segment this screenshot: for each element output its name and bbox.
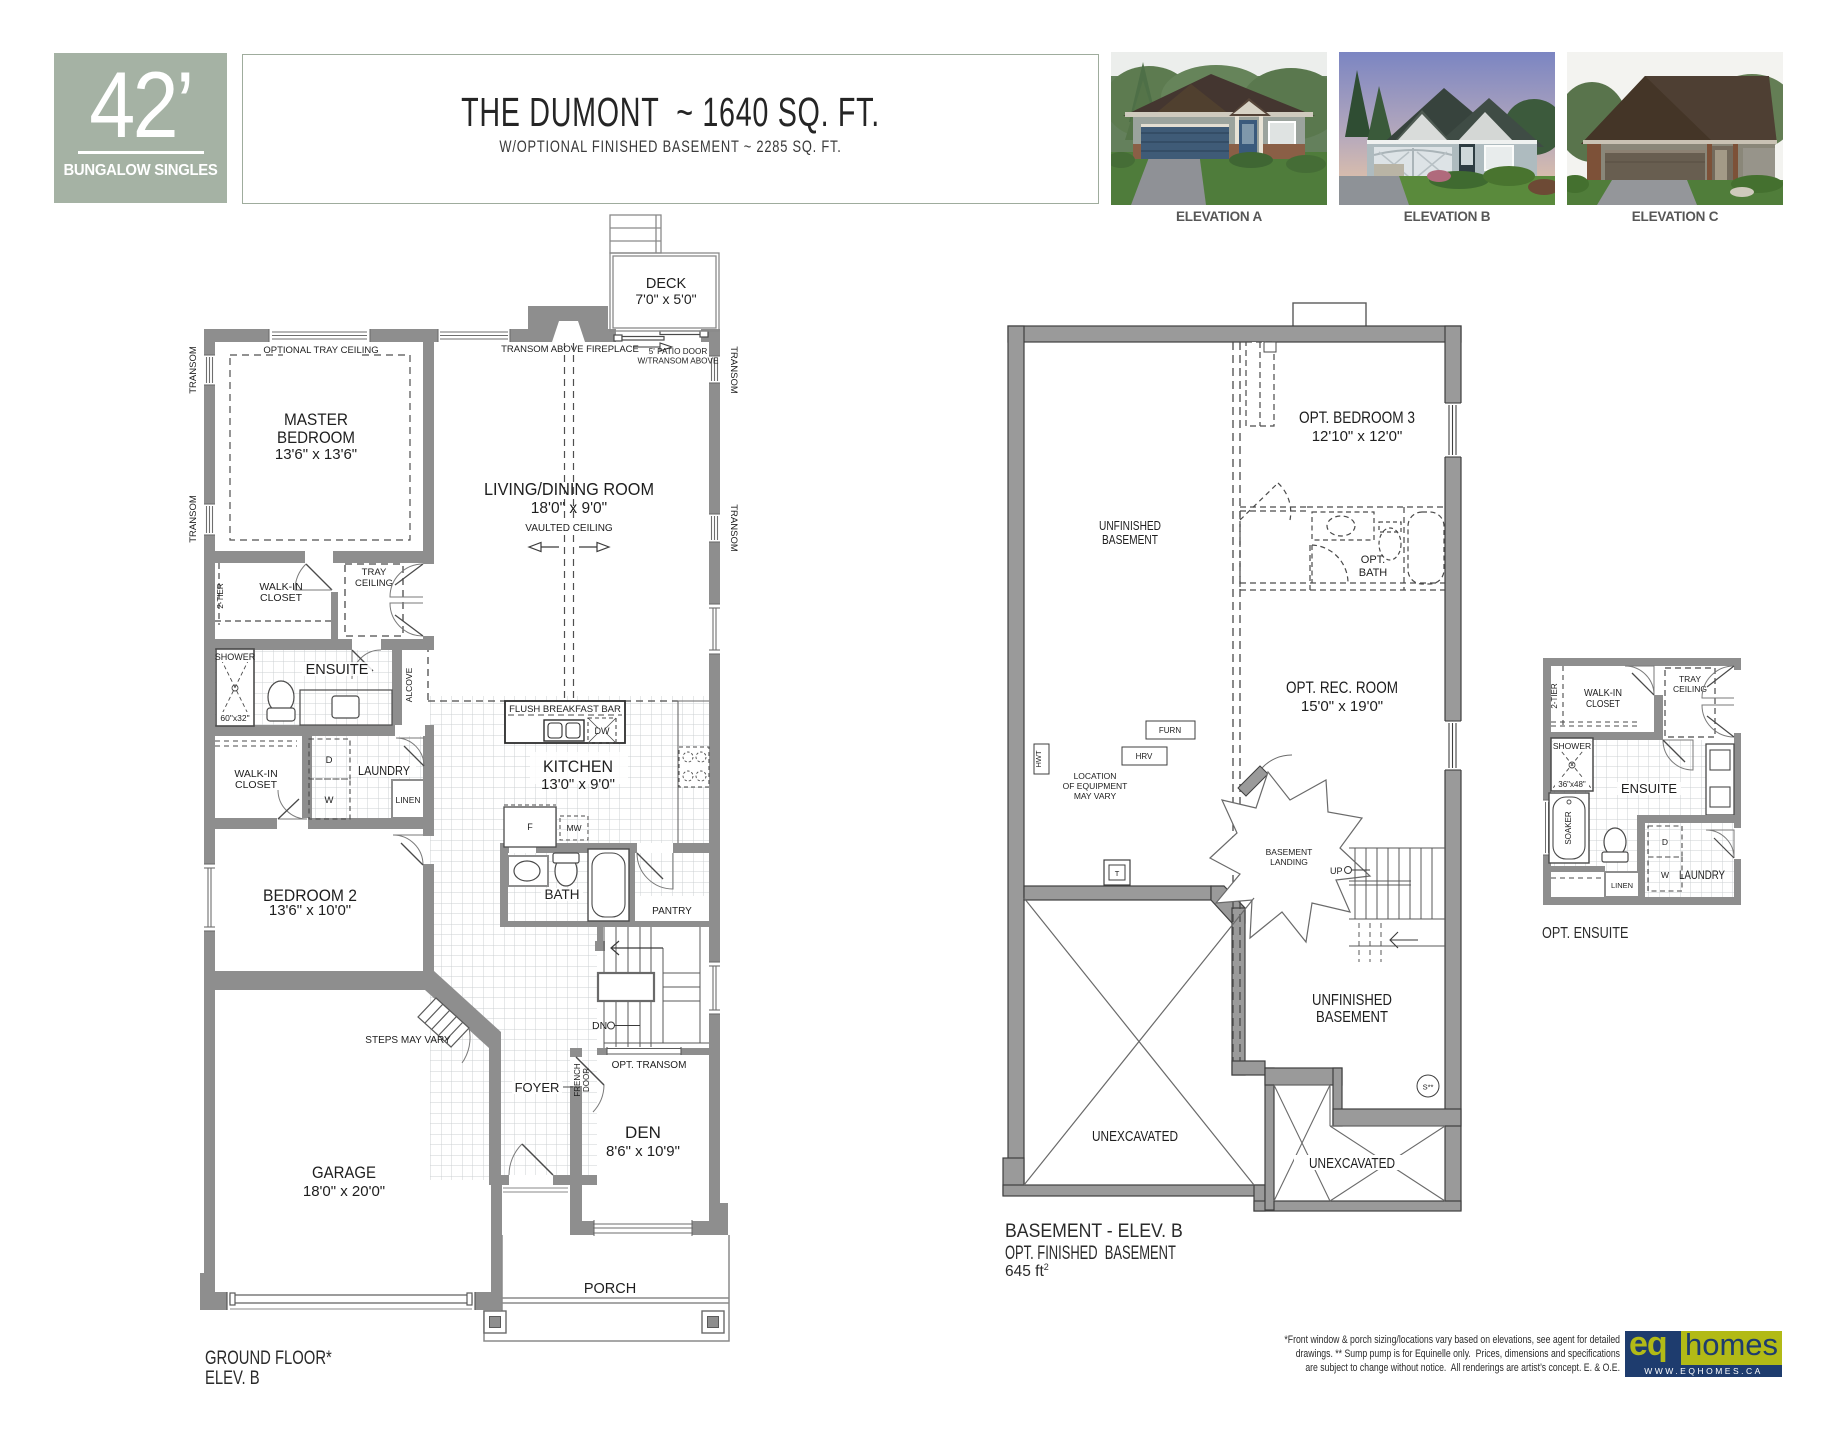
svg-text:LOCATION: LOCATION bbox=[1074, 771, 1117, 781]
svg-text:FURN: FURN bbox=[1159, 726, 1181, 735]
svg-text:13'6" x 10'0": 13'6" x 10'0" bbox=[269, 902, 351, 919]
svg-text:TRAY: TRAY bbox=[362, 567, 387, 578]
svg-text:18'0" x 9'0": 18'0" x 9'0" bbox=[531, 500, 607, 517]
svg-text:TRANSOM: TRANSOM bbox=[728, 346, 739, 394]
svg-text:13'6" x 13'6": 13'6" x 13'6" bbox=[275, 446, 357, 463]
svg-text:OPT.: OPT. bbox=[1361, 554, 1385, 566]
svg-text:LINEN: LINEN bbox=[1611, 881, 1633, 890]
svg-text:2-TIER: 2-TIER bbox=[216, 583, 225, 609]
svg-text:ENSUITE: ENSUITE bbox=[1621, 781, 1677, 796]
svg-text:CEILING: CEILING bbox=[1673, 684, 1707, 694]
svg-text:DECK: DECK bbox=[646, 276, 687, 292]
svg-text:FLUSH BREAKFAST BAR: FLUSH BREAKFAST BAR bbox=[509, 704, 621, 715]
svg-text:UP: UP bbox=[1330, 866, 1343, 876]
svg-text:13'0" x 9'0": 13'0" x 9'0" bbox=[541, 776, 615, 793]
svg-text:BATH: BATH bbox=[1359, 567, 1388, 579]
svg-text:D: D bbox=[326, 755, 333, 766]
svg-text:OPT. REC. ROOM: OPT. REC. ROOM bbox=[1286, 678, 1398, 697]
svg-text:SHOWER: SHOWER bbox=[1553, 741, 1591, 751]
svg-text:PANTRY: PANTRY bbox=[652, 906, 692, 917]
svg-text:60"x32": 60"x32" bbox=[220, 713, 249, 723]
svg-text:FRENCH: FRENCH bbox=[573, 1063, 582, 1097]
svg-text:BASEMENT: BASEMENT bbox=[1266, 847, 1313, 857]
svg-text:D: D bbox=[1662, 837, 1668, 847]
svg-text:OPT. TRANSOM: OPT. TRANSOM bbox=[612, 1060, 687, 1071]
svg-text:OPTIONAL TRAY CEILING: OPTIONAL TRAY CEILING bbox=[263, 345, 378, 356]
svg-text:HWT: HWT bbox=[1034, 750, 1043, 767]
svg-text:BEDROOM: BEDROOM bbox=[277, 428, 355, 447]
svg-text:KITCHEN: KITCHEN bbox=[543, 757, 613, 776]
svg-text:CLOSET: CLOSET bbox=[235, 779, 278, 791]
svg-text:LINEN: LINEN bbox=[395, 795, 420, 805]
svg-text:TRANSOM: TRANSOM bbox=[188, 495, 199, 543]
svg-text:S**: S** bbox=[1423, 1083, 1434, 1092]
svg-text:SOAKER: SOAKER bbox=[1564, 811, 1573, 845]
svg-text:DN: DN bbox=[592, 1020, 607, 1032]
svg-text:UNEXCAVATED: UNEXCAVATED bbox=[1309, 1155, 1395, 1172]
svg-text:CEILING: CEILING bbox=[355, 578, 393, 589]
svg-text:UNFINISHED: UNFINISHED bbox=[1099, 519, 1161, 533]
svg-text:FOYER: FOYER bbox=[515, 1080, 560, 1095]
svg-text:LIVING/DINING ROOM: LIVING/DINING ROOM bbox=[484, 479, 654, 499]
svg-text:ENSUITE: ENSUITE bbox=[306, 662, 369, 678]
svg-text:12'10" x 12'0": 12'10" x 12'0" bbox=[1312, 428, 1403, 445]
svg-text:CLOSET: CLOSET bbox=[1586, 699, 1620, 710]
svg-text:TRANSOM: TRANSOM bbox=[188, 346, 199, 394]
svg-text:HRV: HRV bbox=[1136, 752, 1153, 761]
svg-text:TRANSOM ABOVE FIREPLACE: TRANSOM ABOVE FIREPLACE bbox=[501, 344, 639, 355]
svg-text:2-TIER: 2-TIER bbox=[1550, 683, 1559, 709]
svg-text:STEPS MAY VARY: STEPS MAY VARY bbox=[365, 1035, 451, 1046]
svg-text:15'0" x 19'0": 15'0" x 19'0" bbox=[1301, 698, 1383, 715]
svg-text:MAY VARY: MAY VARY bbox=[1074, 791, 1117, 801]
svg-text:VAULTED CEILING: VAULTED CEILING bbox=[525, 523, 613, 534]
svg-text:PORCH: PORCH bbox=[584, 1281, 636, 1297]
svg-text:LANDING: LANDING bbox=[1270, 857, 1308, 867]
svg-text:SHOWER: SHOWER bbox=[215, 652, 256, 662]
svg-text:DOOR: DOOR bbox=[582, 1068, 591, 1092]
svg-text:T: T bbox=[1115, 869, 1120, 878]
svg-text:WALK-IN: WALK-IN bbox=[1584, 688, 1622, 699]
svg-text:BASEMENT: BASEMENT bbox=[1102, 533, 1158, 547]
svg-text:BASEMENT: BASEMENT bbox=[1316, 1009, 1388, 1026]
svg-text:TRAY: TRAY bbox=[1679, 674, 1701, 684]
svg-text:CLOSET: CLOSET bbox=[260, 592, 303, 604]
svg-text:TRANSOM: TRANSOM bbox=[728, 504, 739, 552]
svg-text:18'0" x 20'0": 18'0" x 20'0" bbox=[303, 1183, 385, 1200]
svg-text:LAUNDRY: LAUNDRY bbox=[358, 764, 411, 778]
svg-text:DW: DW bbox=[595, 726, 610, 736]
svg-text:UNEXCAVATED: UNEXCAVATED bbox=[1092, 1128, 1178, 1145]
svg-text:UNFINISHED: UNFINISHED bbox=[1312, 992, 1392, 1009]
svg-text:F: F bbox=[527, 822, 533, 832]
svg-text:OPT. BEDROOM 3: OPT. BEDROOM 3 bbox=[1299, 408, 1415, 427]
svg-text:GARAGE: GARAGE bbox=[312, 1163, 376, 1182]
svg-text:W: W bbox=[1661, 870, 1669, 880]
svg-text:8'6" x 10'9": 8'6" x 10'9" bbox=[606, 1143, 680, 1160]
svg-text:OF EQUIPMENT: OF EQUIPMENT bbox=[1063, 781, 1128, 791]
svg-text:BATH: BATH bbox=[544, 887, 579, 902]
svg-text:36"x48": 36"x48" bbox=[1558, 780, 1586, 789]
svg-text:ALCOVE: ALCOVE bbox=[404, 667, 414, 702]
svg-text:5' PATIO DOOR: 5' PATIO DOOR bbox=[649, 347, 708, 356]
svg-text:7'0" x 5'0": 7'0" x 5'0" bbox=[635, 291, 696, 307]
svg-text:LAUNDRY: LAUNDRY bbox=[1679, 868, 1725, 882]
svg-text:W/TRANSOM ABOVE: W/TRANSOM ABOVE bbox=[638, 357, 720, 366]
svg-text:MW: MW bbox=[566, 823, 581, 833]
svg-text:DEN: DEN bbox=[625, 1123, 661, 1142]
svg-text:W: W bbox=[325, 795, 334, 806]
svg-text:MASTER: MASTER bbox=[284, 410, 348, 429]
